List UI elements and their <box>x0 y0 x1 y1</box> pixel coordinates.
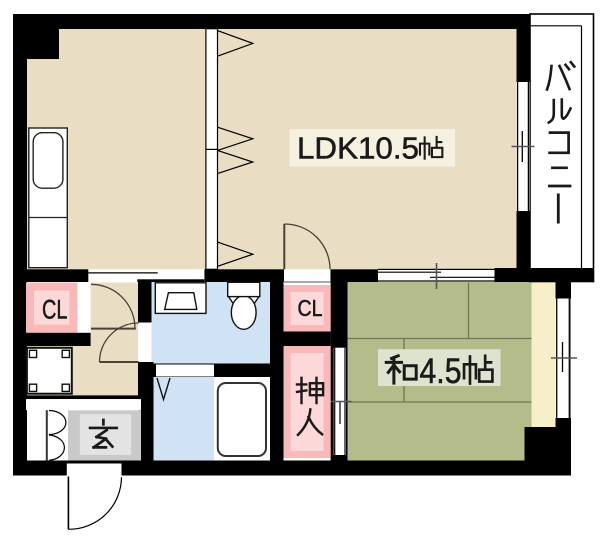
svg-text:CL: CL <box>298 295 323 321</box>
svg-text:CL: CL <box>42 295 68 325</box>
svg-text:4.5: 4.5 <box>420 352 462 391</box>
svg-text:LDK10.5: LDK10.5 <box>297 132 419 166</box>
